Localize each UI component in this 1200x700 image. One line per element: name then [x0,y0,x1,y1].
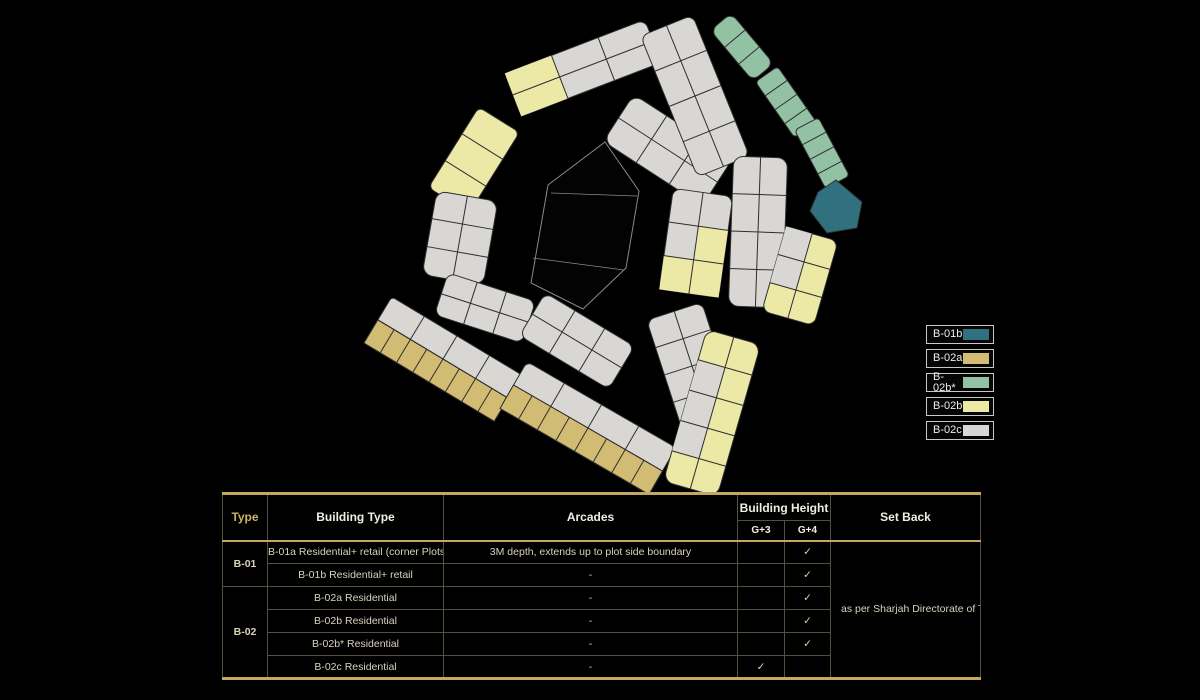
plot-block-green-strip-3 [795,118,850,189]
checkmark-g3 [738,633,785,656]
checkmark-g3 [738,610,785,633]
table-header-row: Type Building Type Arcades Building Heig… [223,494,981,521]
plot-type-legend: B-01b B-02a B-02b* B-02b B-02c [926,325,994,440]
building-type-cell: B-01b Residential+ retail [268,564,444,587]
building-spec-table: Type Building Type Arcades Building Heig… [222,492,981,680]
building-type-cell: B-02b Residential [268,610,444,633]
checkmark-g4 [785,656,831,679]
checkmark-g3 [738,564,785,587]
plot-block-west-gray-block [422,191,498,285]
building-type-cell: B-01a Residential+ retail (corner Plots) [268,541,444,564]
checkmark-g4: ✓ [785,610,831,633]
header-g3: G+3 [738,521,785,541]
checkmark-g4: ✓ [785,541,831,564]
header-arcades: Arcades [444,494,738,541]
legend-color-swatch [963,329,989,340]
checkmark-g4: ✓ [785,633,831,656]
group-label-b02: B-02 [223,587,268,679]
plot-block-green-strip-1 [710,13,773,81]
masterplan-page: B-01b B-02a B-02b* B-02b B-02c Type [0,0,1200,700]
arcades-cell: 3M depth, extends up to plot side bounda… [444,541,738,564]
header-type: Type [223,494,268,541]
legend-item-b02b: B-02b [926,397,994,416]
building-type-cell: B-02b* Residential [268,633,444,656]
arcades-cell: - [444,633,738,656]
table-row: B-01 B-01a Residential+ retail (corner P… [223,541,981,564]
legend-item-b01b: B-01b [926,325,994,344]
plot-block-center-arc-b [659,188,733,297]
legend-label: B-01b [933,329,962,340]
arcades-cell: - [444,564,738,587]
legend-item-b02a: B-02a [926,349,994,368]
legend-label: B-02b [933,401,962,412]
legend-item-b02c: B-02c [926,421,994,440]
checkmark-g4: ✓ [785,587,831,610]
plot-block-south-strip-2 [500,362,676,495]
checkmark-g3 [738,587,785,610]
arcades-cell: - [444,587,738,610]
legend-label: B-02c [933,425,962,436]
legend-label: B-02b* [933,372,963,394]
header-building-type: Building Type [268,494,444,541]
legend-item-b02b-star: B-02b* [926,373,994,392]
legend-color-swatch [963,425,989,436]
arcades-cell: - [444,656,738,679]
plot-block-b01b-corner [810,180,862,233]
legend-label: B-02a [933,353,962,364]
checkmark-g3: ✓ [738,656,785,679]
arcades-cell: - [444,610,738,633]
header-building-height: Building Height [738,494,831,521]
group-label-b01: B-01 [223,541,268,587]
central-open-parcel [531,142,639,309]
set-back-note: as per Sharjah Directorate of Town Plann… [831,541,981,679]
building-type-cell: B-02a Residential [268,587,444,610]
header-set-back: Set Back [831,494,981,541]
checkmark-g4: ✓ [785,564,831,587]
checkmark-g3 [738,541,785,564]
building-type-cell: B-02c Residential [268,656,444,679]
legend-color-swatch [963,401,989,412]
legend-color-swatch [963,353,989,364]
legend-color-swatch [963,377,989,388]
header-g4: G+4 [785,521,831,541]
